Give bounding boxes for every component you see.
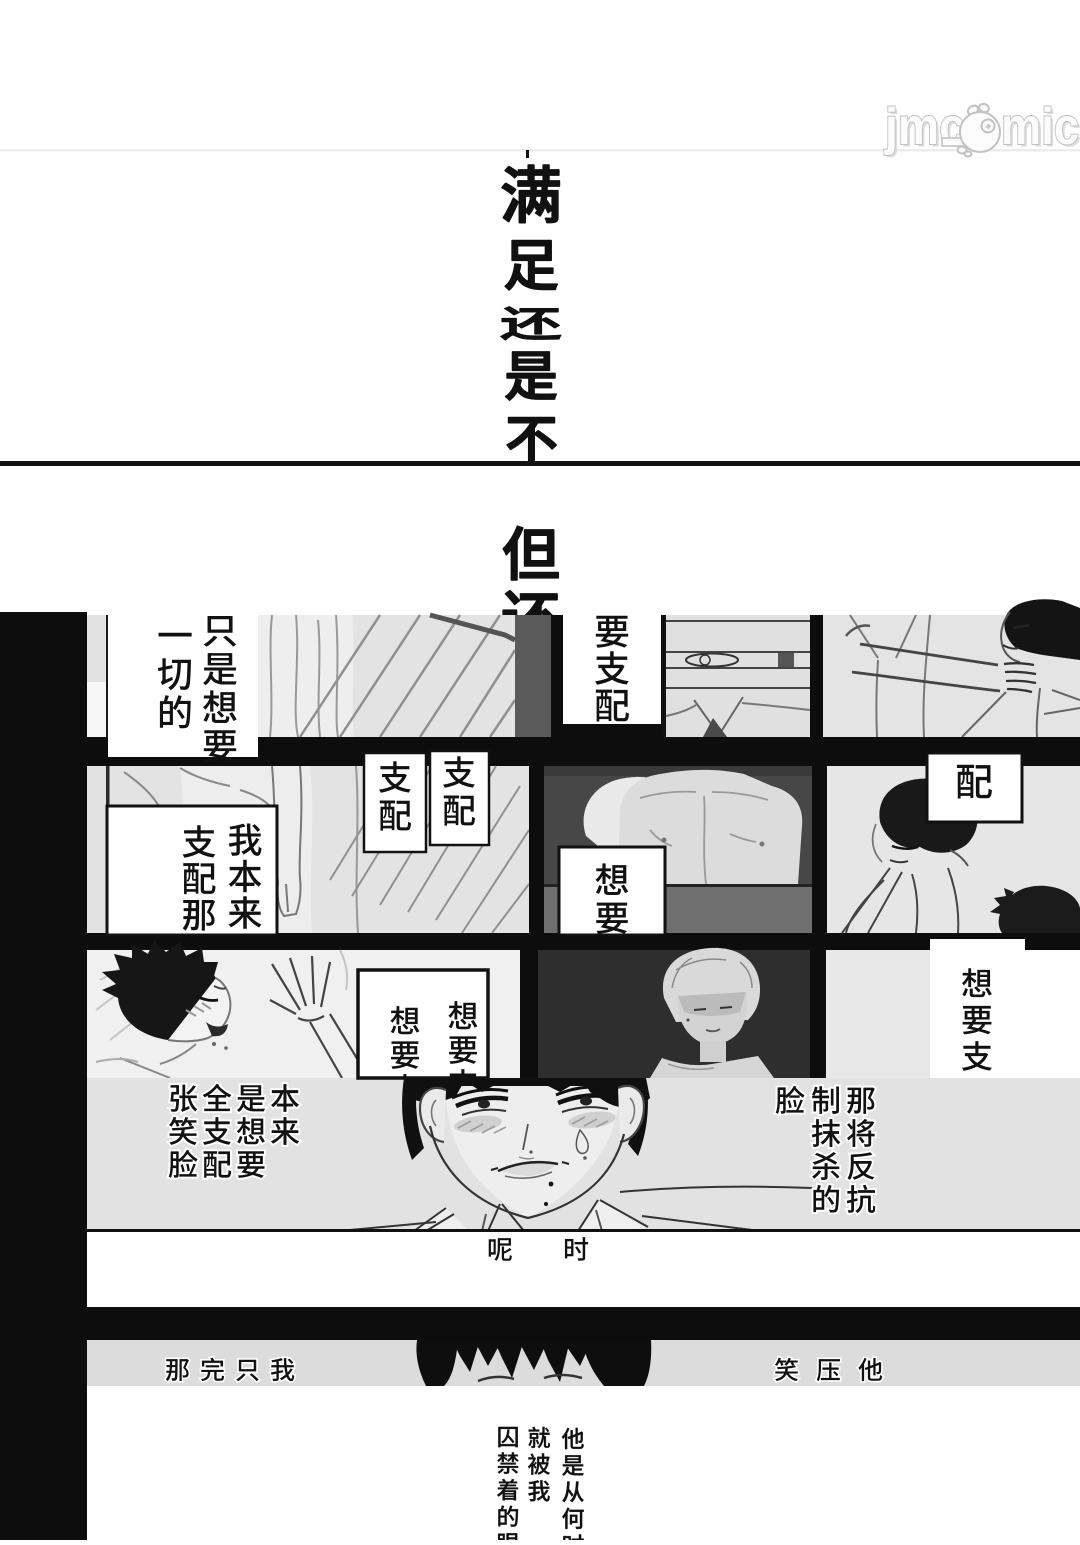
svg-text:mic: mic <box>1001 98 1079 156</box>
svg-text:jmc: jmc <box>884 98 965 156</box>
